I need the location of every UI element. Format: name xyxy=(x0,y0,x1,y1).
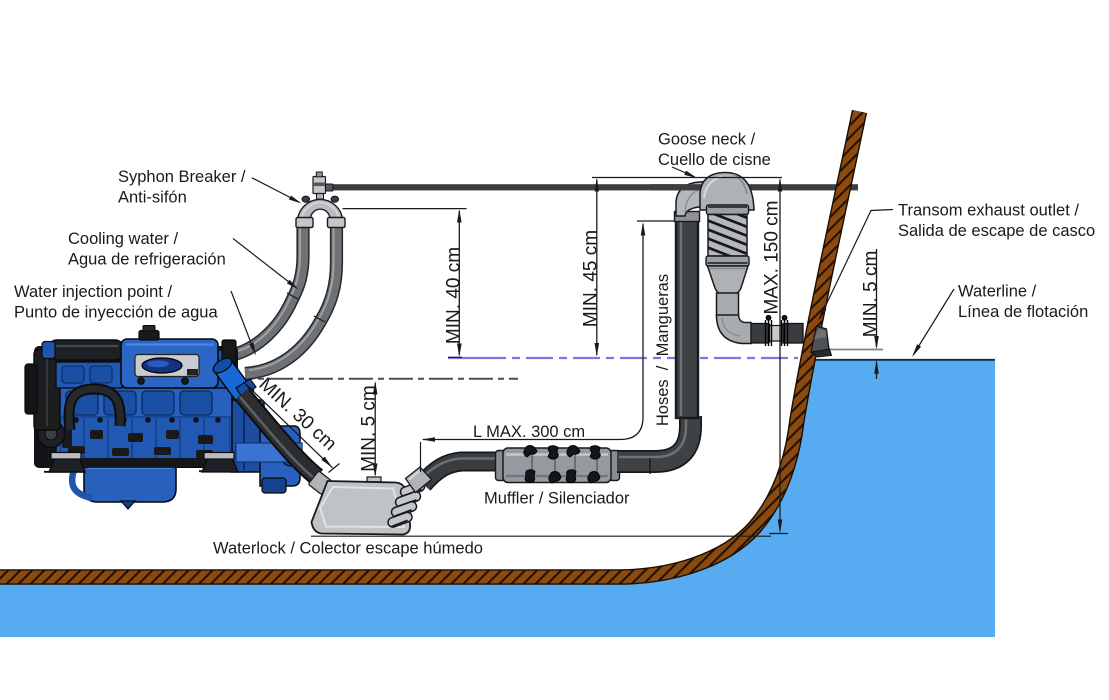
svg-text:Syphon Breaker /: Syphon Breaker / xyxy=(118,168,246,186)
svg-text:MIN. 5 cm: MIN. 5 cm xyxy=(359,385,380,472)
svg-text:Water injection point /: Water injection point / xyxy=(14,283,172,301)
svg-text:L MAX. 300 cm: L MAX. 300 cm xyxy=(473,423,585,441)
svg-text:Hoses / Mangueras: Hoses / Mangueras xyxy=(654,274,672,426)
svg-text:Waterline /: Waterline / xyxy=(958,283,1037,301)
svg-text:MIN. 45 cm: MIN. 45 cm xyxy=(581,230,602,327)
svg-text:Cooling water /: Cooling water / xyxy=(68,230,178,248)
svg-text:Waterlock / Colector escape hú: Waterlock / Colector escape húmedo xyxy=(213,540,483,558)
svg-text:Punto de inyección de agua: Punto de inyección de agua xyxy=(14,304,218,322)
svg-text:Salida de escape de casco: Salida de escape de casco xyxy=(898,222,1095,240)
svg-text:MIN. 5 cm: MIN. 5 cm xyxy=(860,251,881,338)
svg-text:MAX. 150 cm: MAX. 150 cm xyxy=(761,200,782,314)
svg-text:Goose neck /: Goose neck / xyxy=(658,131,756,149)
svg-text:Muffler / Silenciador: Muffler / Silenciador xyxy=(484,490,630,508)
svg-text:Línea de flotación: Línea de flotación xyxy=(958,303,1088,321)
svg-text:Transom exhaust outlet /: Transom exhaust outlet / xyxy=(898,202,1079,220)
svg-text:Agua de refrigeración: Agua de refrigeración xyxy=(68,251,226,269)
svg-text:Cuello de cisne: Cuello de cisne xyxy=(658,151,771,169)
svg-text:MIN. 40 cm: MIN. 40 cm xyxy=(444,247,465,344)
svg-text:Anti-sifón: Anti-sifón xyxy=(118,189,187,207)
